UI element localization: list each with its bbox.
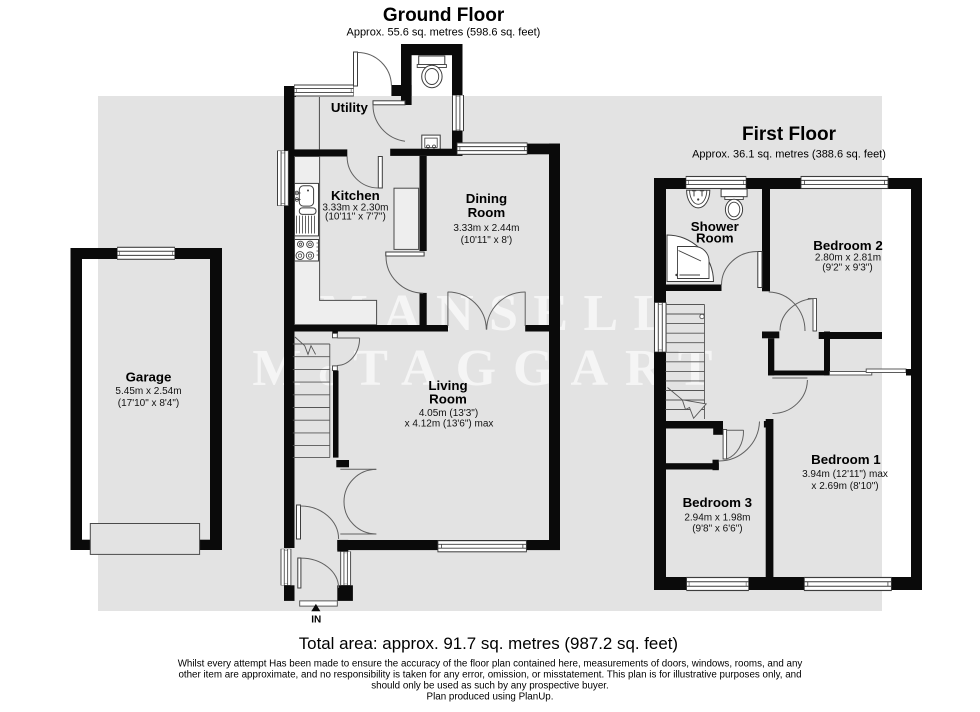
svg-text:Bedroom 3: Bedroom 3 (683, 495, 752, 510)
svg-text:5.45m x 2.54m: 5.45m x 2.54m (115, 386, 181, 397)
svg-text:IN: IN (311, 615, 321, 626)
svg-text:Dining: Dining (466, 191, 507, 206)
svg-text:3.94m (12'11") max: 3.94m (12'11") max (802, 469, 888, 480)
svg-text:Plan produced using PlanUp.: Plan produced using PlanUp. (427, 691, 554, 702)
svg-text:Approx. 36.1 sq. metres (388.6: Approx. 36.1 sq. metres (388.6 sq. feet) (692, 148, 886, 160)
svg-text:(9'8" x 6'6"): (9'8" x 6'6") (692, 523, 742, 534)
svg-text:Utility: Utility (331, 100, 369, 115)
svg-text:4.05m (13'3"): 4.05m (13'3") (419, 408, 478, 419)
svg-text:3.33m x 2.44m: 3.33m x 2.44m (453, 223, 519, 234)
svg-text:Room: Room (468, 205, 506, 220)
svg-text:(9'2" x 9'3"): (9'2" x 9'3") (822, 262, 872, 273)
svg-text:Total area: approx. 91.7 sq. m: Total area: approx. 91.7 sq. metres (987… (299, 634, 678, 653)
svg-text:(10'11" x 8'): (10'11" x 8') (461, 235, 513, 246)
svg-text:(17'10" x 8'4"): (17'10" x 8'4") (118, 398, 180, 409)
svg-text:should only be used as such by: should only be used as such by any prosp… (371, 680, 608, 691)
svg-text:Bedroom 2: Bedroom 2 (813, 238, 882, 253)
svg-text:x 4.12m (13'6") max: x 4.12m (13'6") max (405, 419, 494, 430)
svg-text:Bedroom 1: Bedroom 1 (811, 452, 881, 467)
svg-text:Room: Room (696, 231, 734, 246)
svg-text:Room: Room (429, 392, 467, 407)
svg-text:2.94m x 1.98m: 2.94m x 1.98m (684, 513, 750, 524)
svg-text:Kitchen: Kitchen (331, 188, 380, 203)
svg-text:x 2.69m (8'10"): x 2.69m (8'10") (811, 481, 878, 492)
svg-text:First Floor: First Floor (742, 124, 837, 145)
svg-text:(10'11" x 7'7"): (10'11" x 7'7") (325, 211, 386, 222)
svg-text:Ground Floor: Ground Floor (383, 5, 505, 26)
svg-text:Garage: Garage (126, 370, 172, 385)
svg-text:other item are approximate, an: other item are approximate, and no respo… (178, 669, 801, 680)
svg-text:Approx. 55.6 sq. metres (598.6: Approx. 55.6 sq. metres (598.6 sq. feet) (346, 26, 540, 38)
svg-text:Whilst every attempt Has been: Whilst every attempt Has been made to en… (178, 658, 803, 669)
